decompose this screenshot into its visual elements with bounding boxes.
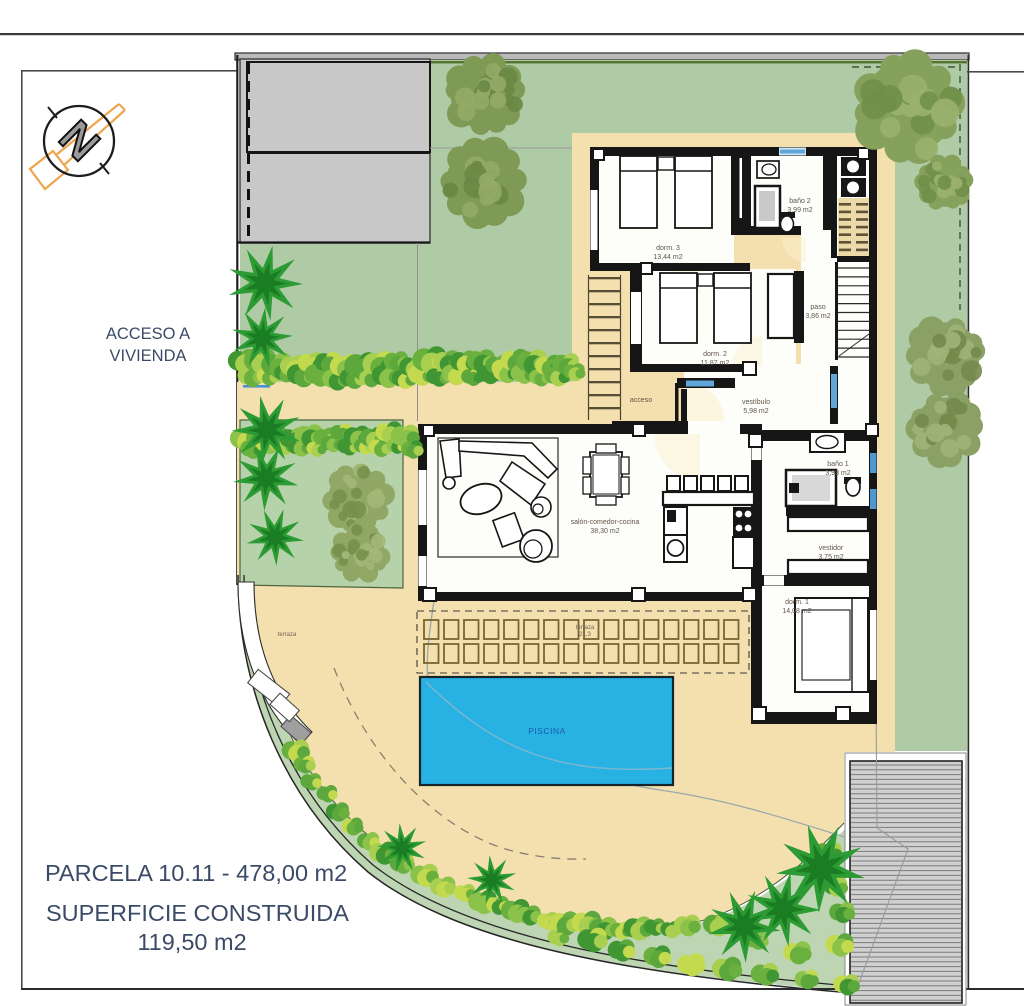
svg-text:PARCELA 10.11 - 478,00 m2: PARCELA 10.11 - 478,00 m2 xyxy=(45,860,347,886)
svg-text:ACCESO A: ACCESO A xyxy=(106,325,190,343)
svg-text:SUPERFICIE CONSTRUIDA: SUPERFICIE CONSTRUIDA xyxy=(46,900,349,926)
svg-text:dorm. 2: dorm. 2 xyxy=(703,351,727,358)
svg-text:vestidor: vestidor xyxy=(819,545,844,552)
svg-text:baño 2: baño 2 xyxy=(789,198,811,205)
svg-text:3,75 m2: 3,75 m2 xyxy=(818,554,843,561)
svg-text:paso: paso xyxy=(810,304,825,311)
svg-text:21,3: 21,3 xyxy=(579,632,591,638)
svg-text:5,98 m2: 5,98 m2 xyxy=(743,408,768,415)
svg-text:dorm. 1: dorm. 1 xyxy=(785,599,809,606)
svg-text:13,44 m2: 13,44 m2 xyxy=(653,254,682,261)
svg-text:14,08 m2: 14,08 m2 xyxy=(782,608,811,615)
svg-text:vestíbulo: vestíbulo xyxy=(742,399,770,406)
svg-text:3,98 m2: 3,98 m2 xyxy=(825,470,850,477)
svg-text:dorm. 3: dorm. 3 xyxy=(656,245,680,252)
svg-text:3,99 m2: 3,99 m2 xyxy=(787,207,812,214)
svg-text:terraza: terraza xyxy=(576,625,595,631)
svg-text:3,86 m2: 3,86 m2 xyxy=(805,313,830,320)
svg-text:VIVIENDA: VIVIENDA xyxy=(109,347,186,365)
svg-text:terraza: terraza xyxy=(278,632,297,638)
svg-text:119,50 m2: 119,50 m2 xyxy=(137,929,246,955)
svg-text:PISCINA: PISCINA xyxy=(528,726,566,736)
svg-text:11,87 m2: 11,87 m2 xyxy=(701,360,730,367)
svg-text:salón-comedor-cocina: salón-comedor-cocina xyxy=(571,519,640,526)
svg-text:acceso: acceso xyxy=(630,397,652,404)
svg-text:38,30 m2: 38,30 m2 xyxy=(590,528,619,535)
svg-text:baño 1: baño 1 xyxy=(827,461,849,468)
